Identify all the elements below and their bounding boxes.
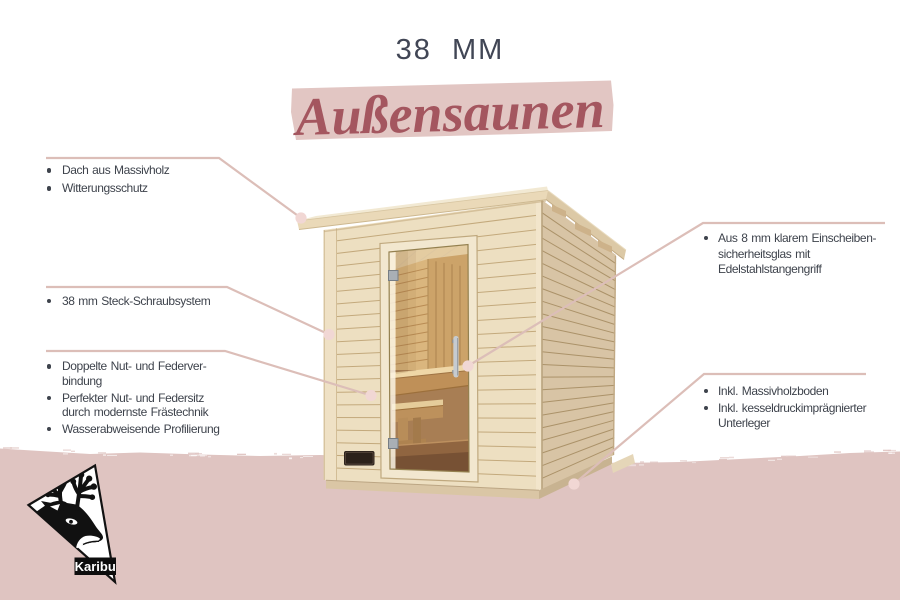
svg-text:Karibu: Karibu xyxy=(75,559,116,574)
